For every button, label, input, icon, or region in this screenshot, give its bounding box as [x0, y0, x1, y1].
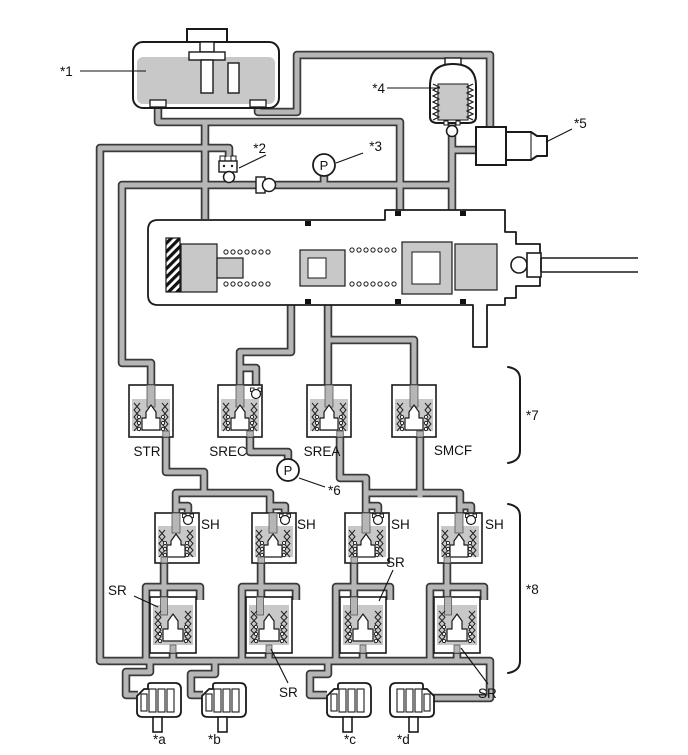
- wheel-cylinder-a: [137, 683, 181, 732]
- label-srec: SREC: [209, 444, 247, 459]
- relief-valve: [219, 156, 237, 183]
- valve-str: [129, 385, 173, 437]
- check-valve: [256, 177, 276, 193]
- callout-8: *8: [526, 582, 539, 597]
- callout-d: *d: [397, 732, 410, 747]
- callout-1: *1: [60, 64, 73, 79]
- wheel-cylinder-d: [390, 683, 434, 732]
- valve-smcf: [392, 385, 436, 437]
- valve-sh-3: [345, 513, 389, 563]
- callout-2: *2: [253, 141, 266, 156]
- pump-motor: [476, 127, 547, 165]
- label-sh-4: SH: [485, 517, 504, 532]
- valve-sh-2: [252, 513, 296, 563]
- label-sr-2: SR: [279, 685, 298, 700]
- pressure-gauge-3: P: [313, 154, 335, 176]
- leader-line: [299, 478, 325, 487]
- valve-sr-1: [150, 597, 196, 653]
- label-sr-4: SR: [478, 686, 497, 701]
- pressure-gauge-6-letter: P: [284, 463, 293, 478]
- callout-6: *6: [328, 483, 341, 498]
- label-sh-2: SH: [297, 517, 316, 532]
- wheel-cylinder-b: [202, 683, 246, 732]
- callout-c: *c: [344, 732, 356, 747]
- valve-sr-2: [246, 597, 292, 653]
- label-smcf: SMCF: [434, 443, 472, 458]
- leader-line: [336, 153, 363, 163]
- leader-line: [239, 155, 266, 168]
- valve-sh-1: [155, 513, 199, 563]
- valve-srec: [218, 385, 262, 437]
- master-cylinder: [148, 210, 638, 347]
- leader-line: [546, 129, 572, 142]
- hydraulic-diagram: PP *1*2*3*4*5*6*7*8STRSRECSREASMCFSHSHSH…: [0, 0, 688, 755]
- label-sh-3: SH: [391, 517, 410, 532]
- bracket-8: [508, 504, 520, 673]
- valve-sr-3: [340, 597, 386, 653]
- pressure-gauge-6: P: [277, 459, 299, 481]
- label-str: STR: [134, 444, 161, 459]
- reservoir: [133, 29, 279, 108]
- callout-a: *a: [153, 732, 166, 747]
- leader-line: [271, 649, 288, 683]
- valve-sr-4: [434, 597, 480, 653]
- valve-srea: [307, 385, 351, 437]
- label-sr-3: SR: [386, 555, 405, 570]
- label-sr-1: SR: [108, 583, 127, 598]
- wheel-cylinder-c: [327, 683, 371, 732]
- callout-7: *7: [526, 408, 539, 423]
- diagram-canvas: PP *1*2*3*4*5*6*7*8STRSRECSREASMCFSHSHSH…: [0, 0, 688, 755]
- valve-sh-4: [438, 513, 482, 563]
- callout-5: *5: [574, 116, 587, 131]
- bracket-7: [508, 367, 520, 463]
- callout-b: *b: [208, 732, 221, 747]
- callout-4: *4: [372, 81, 385, 96]
- pressure-gauge-3-letter: P: [320, 158, 329, 173]
- label-sh-1: SH: [201, 517, 220, 532]
- label-srea: SREA: [304, 444, 341, 459]
- callout-3: *3: [369, 139, 382, 154]
